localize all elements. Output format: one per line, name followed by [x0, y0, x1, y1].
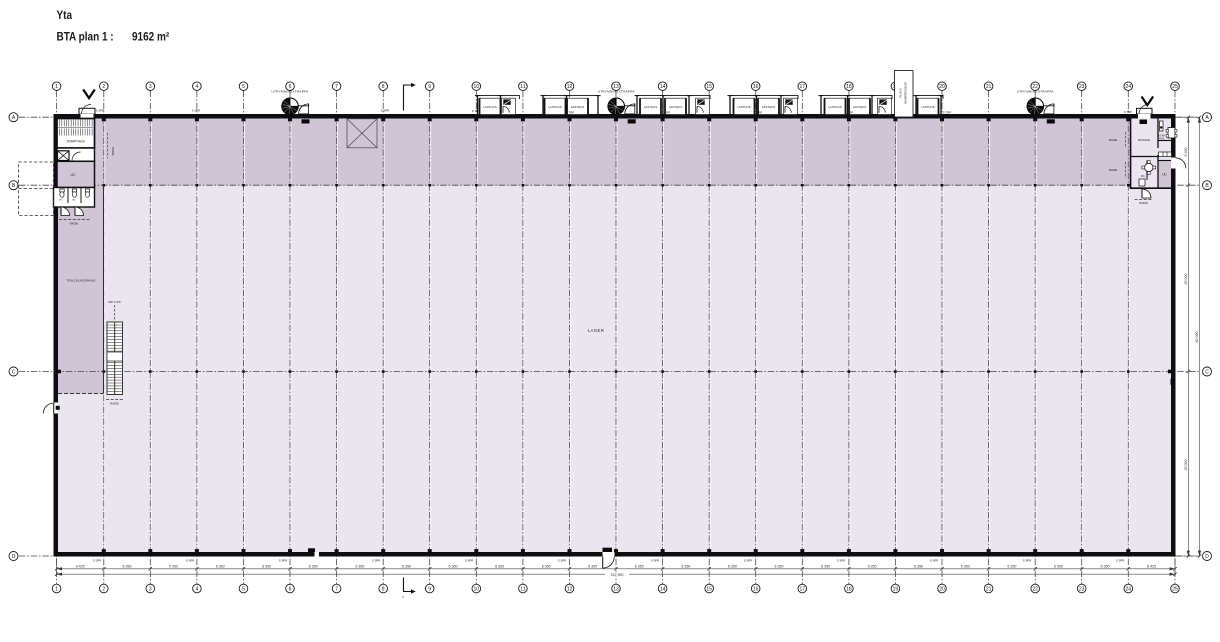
svg-text:12: 12 — [567, 586, 573, 592]
svg-text:S SPR: S SPR — [744, 559, 752, 563]
svg-text:S SPR: S SPR — [96, 109, 104, 113]
svg-text:23: 23 — [1079, 84, 1085, 90]
svg-text:D: D — [12, 554, 16, 560]
svg-text:8: 8 — [382, 84, 385, 90]
svg-text:UC: UC — [1162, 173, 1167, 177]
svg-text:4: 4 — [196, 84, 199, 90]
svg-text:S SPR: S SPR — [192, 109, 200, 113]
svg-text:16: 16 — [753, 586, 759, 592]
svg-text:6 350: 6 350 — [216, 564, 225, 568]
svg-text:Yta: Yta — [57, 9, 73, 22]
svg-text:16: 16 — [753, 84, 759, 90]
svg-text:1: 1 — [55, 84, 58, 90]
svg-text:RADIE: RADIE — [111, 147, 115, 156]
svg-text:12: 12 — [567, 84, 573, 90]
svg-text:S SPR: S SPR — [651, 559, 659, 563]
svg-text:2: 2 — [102, 586, 105, 592]
svg-text:6 350: 6 350 — [868, 564, 877, 568]
svg-text:6 350: 6 350 — [1101, 564, 1110, 568]
svg-text:TRP 1 UPG: TRP 1 UPG — [108, 301, 121, 304]
svg-text:15: 15 — [706, 84, 712, 90]
svg-text:RADIE: RADIE — [1109, 138, 1118, 142]
svg-text:S TRP: S TRP — [1124, 110, 1132, 114]
svg-text:24: 24 — [1126, 84, 1132, 90]
svg-text:PLATS: PLATS — [899, 88, 903, 97]
svg-text:20: 20 — [939, 586, 945, 592]
svg-text:20: 20 — [939, 84, 945, 90]
svg-text:25: 25 — [1172, 84, 1178, 90]
svg-text:6 350: 6 350 — [635, 564, 644, 568]
svg-text:6 350: 6 350 — [262, 564, 271, 568]
svg-text:KOMPRESSOR: KOMPRESSOR — [904, 81, 908, 103]
svg-text:RADIE: RADIE — [110, 402, 119, 406]
svg-text:25 000: 25 000 — [1184, 460, 1188, 471]
svg-text:15: 15 — [706, 586, 712, 592]
svg-text:WC: WC — [59, 200, 63, 202]
svg-text:6 350: 6 350 — [495, 564, 504, 568]
svg-text:6 350: 6 350 — [961, 564, 970, 568]
svg-text:22: 22 — [1032, 586, 1038, 592]
svg-text:6 425: 6 425 — [76, 564, 85, 568]
svg-text:»: » — [402, 595, 404, 599]
svg-text:C: C — [12, 369, 16, 375]
svg-text:5: 5 — [242, 84, 245, 90]
svg-text:RADIE: RADIE — [70, 222, 79, 226]
svg-text:6: 6 — [289, 586, 292, 592]
svg-text:UTRYMNINGSTRAPPA: UTRYMNINGSTRAPPA — [1017, 90, 1055, 94]
svg-text:WC: WC — [1141, 176, 1145, 178]
svg-text:BTA plan 1 :: BTA plan 1 : — [57, 31, 114, 44]
svg-text:S SPR: S SPR — [1116, 559, 1124, 563]
svg-text:UTRYMNINGSTRAPPA: UTRYMNINGSTRAPPA — [272, 90, 310, 94]
svg-text:9: 9 — [428, 84, 431, 90]
svg-text:25: 25 — [1172, 586, 1178, 592]
svg-text:RADIE: RADIE — [1139, 201, 1148, 205]
svg-text:S SPR: S SPR — [1023, 559, 1031, 563]
svg-text:3: 3 — [149, 84, 152, 90]
svg-text:17: 17 — [800, 84, 806, 90]
svg-text:S SPR: S SPR — [381, 109, 389, 113]
svg-text:25 000: 25 000 — [1184, 274, 1188, 285]
svg-text:FIKA: FIKA — [1159, 138, 1165, 141]
svg-text:LAGER: LAGER — [588, 328, 605, 333]
svg-text:1: 1 — [55, 586, 58, 592]
svg-text:S SPR: S SPR — [279, 559, 287, 563]
svg-text:7: 7 — [335, 84, 338, 90]
svg-text:6 350: 6 350 — [728, 564, 737, 568]
svg-text:2: 2 — [102, 84, 105, 90]
svg-text:6 350: 6 350 — [1054, 564, 1063, 568]
svg-text:10: 10 — [474, 84, 480, 90]
svg-text:3: 3 — [149, 586, 152, 592]
svg-text:TRUCKLADDNING: TRUCKLADDNING — [66, 279, 96, 283]
svg-text:60 000: 60 000 — [1195, 332, 1199, 343]
svg-text:TRAPPHUS: TRAPPHUS — [66, 140, 85, 144]
svg-text:PASSAGE: PASSAGE — [1138, 138, 1150, 142]
svg-text:6 350: 6 350 — [821, 564, 830, 568]
svg-text:6 350: 6 350 — [309, 564, 318, 568]
svg-text:5: 5 — [242, 586, 245, 592]
svg-text:6 350: 6 350 — [914, 564, 923, 568]
svg-text:8: 8 — [382, 586, 385, 592]
svg-text:RADIE: RADIE — [1109, 168, 1118, 172]
svg-text:23: 23 — [1079, 586, 1085, 592]
svg-text:14: 14 — [660, 84, 666, 90]
svg-text:9 200: 9 200 — [1184, 148, 1188, 157]
svg-text:11: 11 — [520, 84, 525, 90]
svg-text:S TRP: S TRP — [845, 110, 854, 114]
svg-text:UTRYMNINGSTRAPPA: UTRYMNINGSTRAPPA — [598, 90, 636, 94]
svg-text:S SPR: S SPR — [930, 559, 938, 563]
svg-text:S SPR: S SPR — [837, 559, 845, 563]
svg-text:14: 14 — [660, 586, 666, 592]
svg-text:6 350: 6 350 — [449, 564, 458, 568]
svg-text:WC: WC — [72, 200, 76, 202]
svg-text:9162 m²: 9162 m² — [132, 31, 170, 44]
svg-text:S TRP: S TRP — [472, 109, 481, 113]
svg-text:6 350: 6 350 — [775, 564, 784, 568]
svg-text:18: 18 — [846, 586, 852, 592]
svg-text:S TRP: S TRP — [662, 110, 671, 114]
svg-text:19: 19 — [893, 586, 899, 592]
svg-text:S SPR: S SPR — [372, 559, 380, 563]
svg-text:S SPR: S SPR — [186, 559, 194, 563]
svg-text:S SPR: S SPR — [465, 559, 473, 563]
svg-text:9: 9 — [428, 586, 431, 592]
svg-text:S SPR: S SPR — [93, 559, 101, 563]
svg-text:13: 13 — [613, 586, 619, 592]
svg-text:7: 7 — [335, 586, 338, 592]
svg-text:UC: UC — [71, 173, 76, 177]
svg-text:S TRP: S TRP — [943, 110, 952, 114]
svg-text:6 350: 6 350 — [169, 564, 178, 568]
svg-text:6 350: 6 350 — [402, 564, 411, 568]
svg-text:4: 4 — [196, 586, 199, 592]
svg-text:17: 17 — [800, 586, 806, 592]
svg-text:C: C — [1205, 369, 1209, 375]
svg-text:24: 24 — [1126, 586, 1132, 592]
svg-text:6 350: 6 350 — [1007, 564, 1016, 568]
svg-text:S TRP: S TRP — [566, 110, 575, 114]
svg-text:21: 21 — [986, 586, 992, 592]
svg-text:21: 21 — [986, 84, 992, 90]
svg-text:6 350: 6 350 — [123, 564, 132, 568]
svg-text:6 350: 6 350 — [355, 564, 364, 568]
svg-text:18: 18 — [846, 84, 852, 90]
svg-text:S TRP: S TRP — [754, 110, 763, 114]
svg-text:6 350: 6 350 — [588, 564, 597, 568]
svg-text:D: D — [1205, 554, 1209, 560]
svg-text:6 350: 6 350 — [542, 564, 551, 568]
svg-text:10: 10 — [474, 586, 480, 592]
svg-text:6 425: 6 425 — [1147, 564, 1156, 568]
svg-text:152 550: 152 550 — [611, 573, 624, 577]
svg-text:S SPR: S SPR — [558, 559, 566, 563]
svg-text:11: 11 — [520, 586, 525, 592]
svg-text:6 350: 6 350 — [681, 564, 690, 568]
